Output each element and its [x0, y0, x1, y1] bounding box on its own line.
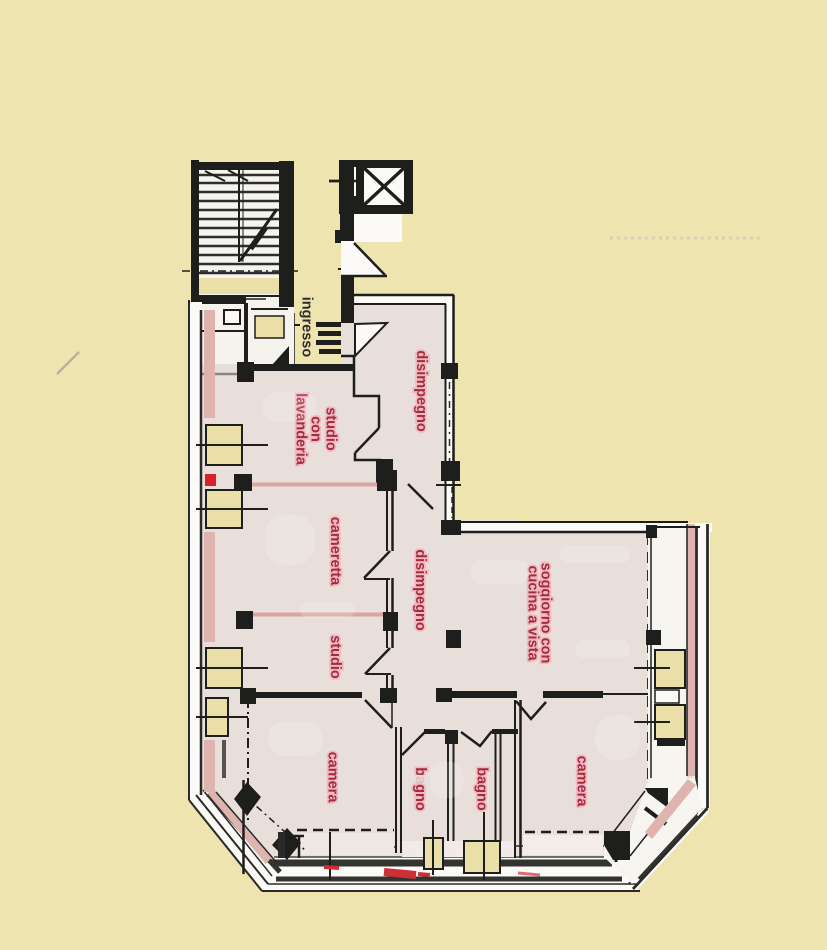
svg-text:ingresso: ingresso	[299, 297, 315, 358]
svg-text:studio: studio	[323, 407, 339, 451]
svg-text:cameretta: cameretta	[327, 517, 343, 586]
svg-text:camera: camera	[574, 756, 590, 808]
svg-text:camera: camera	[325, 752, 341, 804]
svg-text:studio: studio	[327, 635, 343, 679]
svg-text:bagno: bagno	[412, 767, 428, 811]
svg-text:disimpegno: disimpegno	[413, 350, 429, 432]
svg-text:con: con	[308, 416, 324, 442]
svg-text:bagno: bagno	[474, 767, 490, 811]
svg-text:disimpegno: disimpegno	[412, 549, 428, 631]
